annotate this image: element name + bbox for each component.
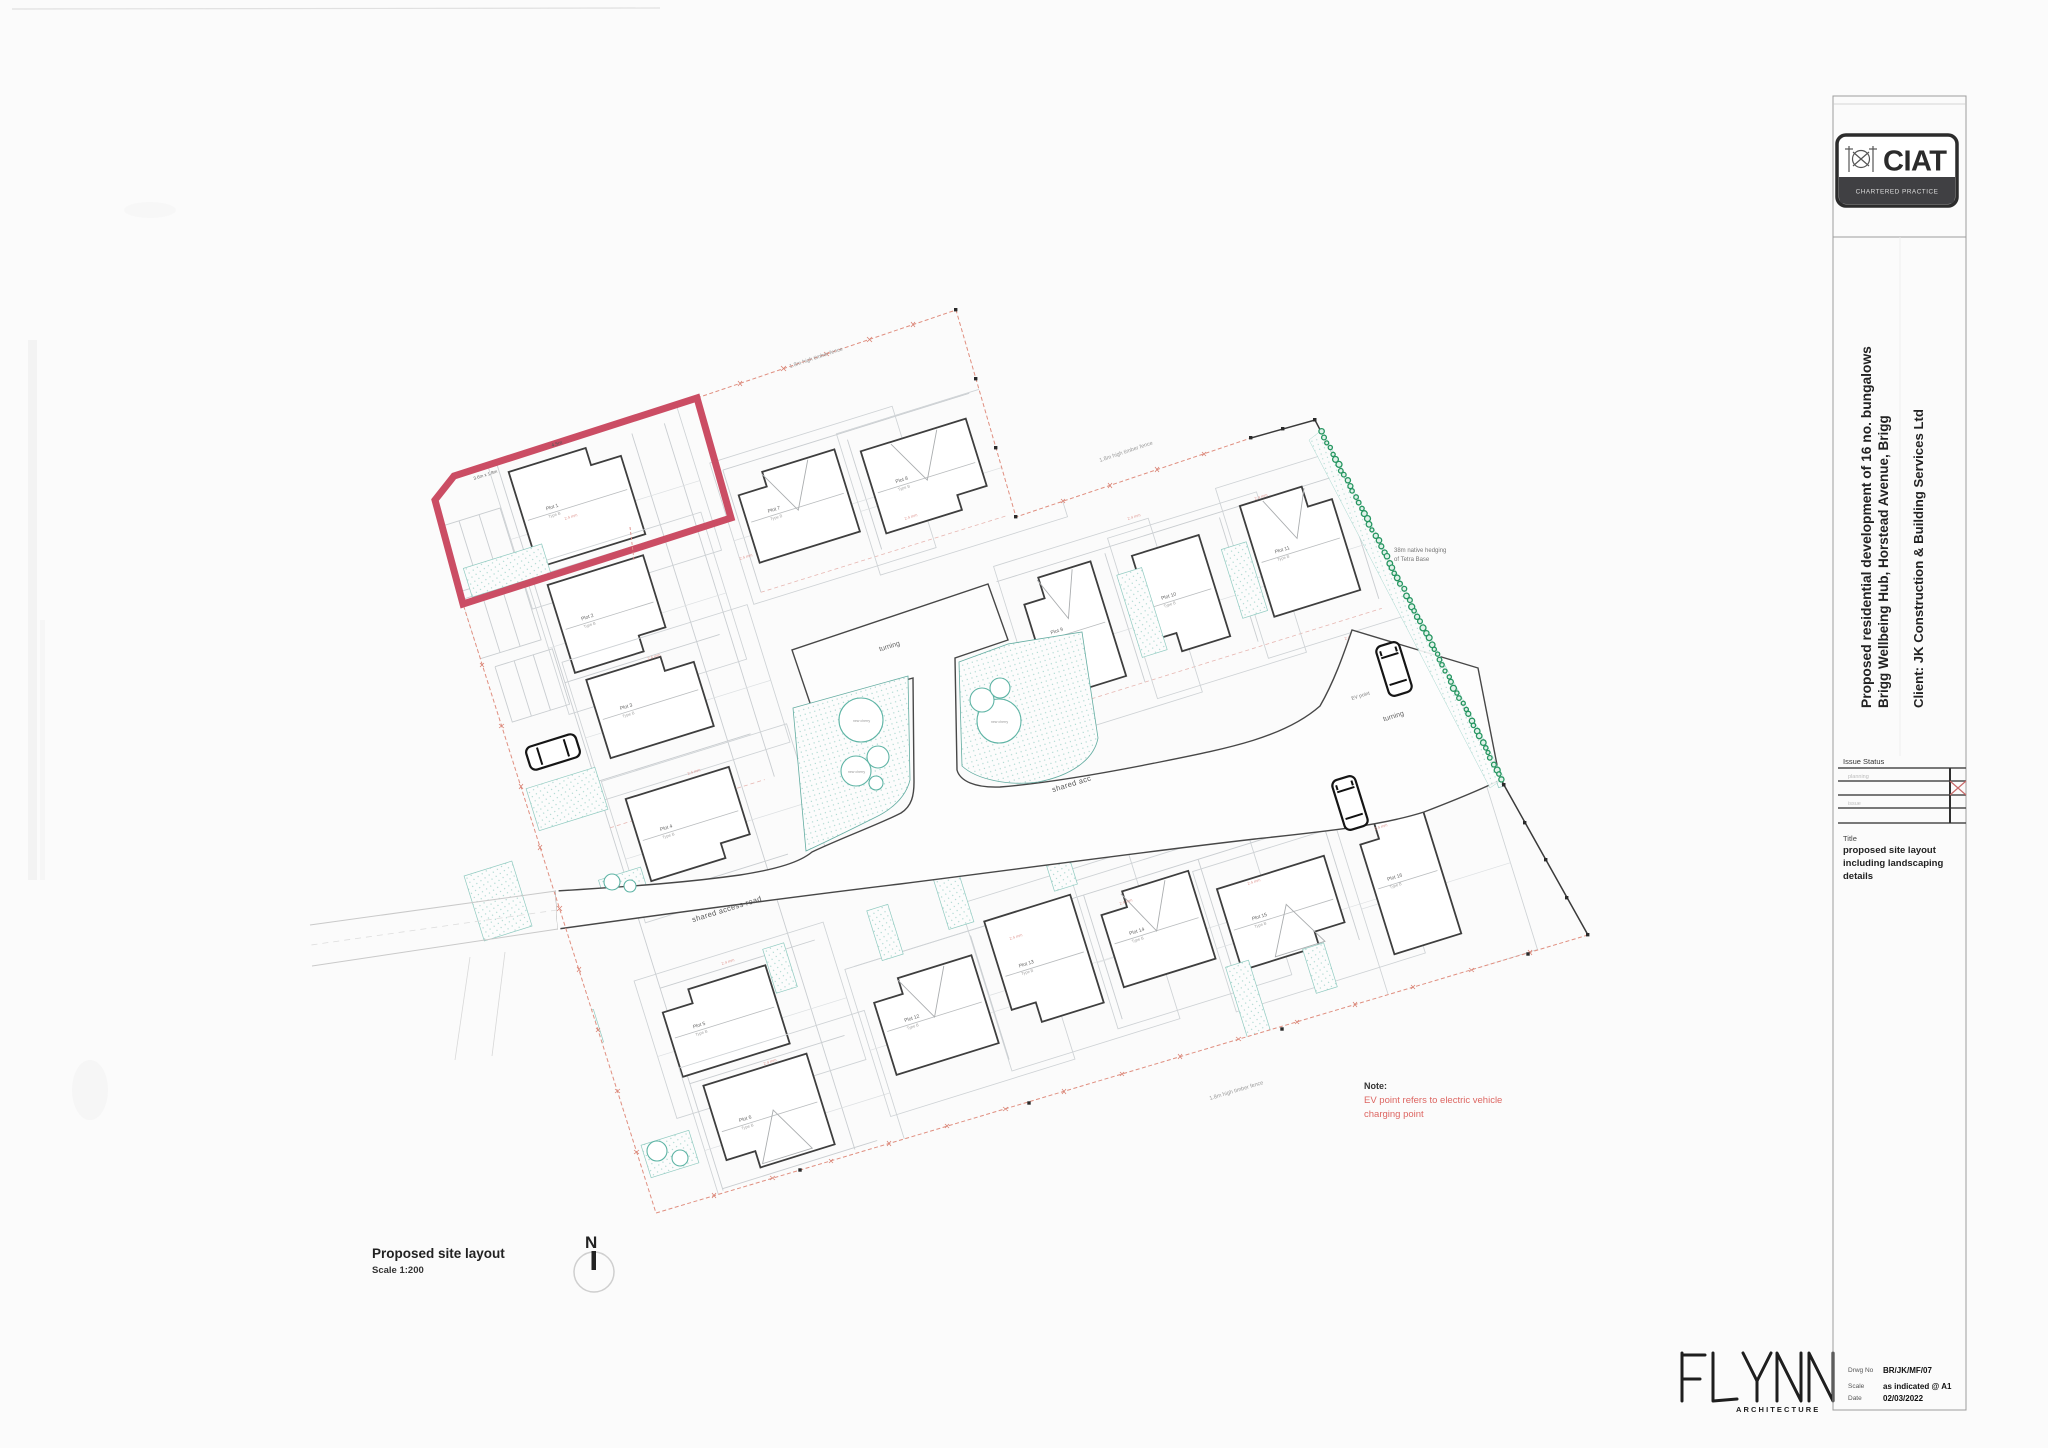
svg-text:Date: Date (1848, 1395, 1862, 1402)
svg-text:proposed site layout: proposed site layout (1843, 845, 1937, 856)
svg-text:ARCHITECTURE: ARCHITECTURE (1736, 1405, 1820, 1414)
svg-text:issue: issue (1848, 801, 1861, 807)
svg-text:38m native hedging: 38m native hedging (1394, 548, 1446, 554)
svg-text:new cherry: new cherry (853, 719, 870, 723)
svg-text:including landscaping: including landscaping (1843, 858, 1943, 869)
svg-text:EV point refers to electric ve: EV point refers to electric vehicle (1364, 1095, 1502, 1106)
svg-text:Title: Title (1843, 834, 1857, 843)
svg-text:CIAT: CIAT (1883, 146, 1947, 178)
svg-text:of Tetra Base: of Tetra Base (1394, 557, 1430, 563)
svg-text:new cherry: new cherry (848, 770, 865, 774)
svg-text:Issue Status: Issue Status (1843, 757, 1885, 766)
svg-text:as indicated @ A1: as indicated @ A1 (1883, 1382, 1952, 1391)
svg-text:Scale 1:200: Scale 1:200 (372, 1265, 424, 1276)
svg-text:BR/JK/MF/07: BR/JK/MF/07 (1883, 1366, 1932, 1375)
svg-text:Client: JK Construction & Bui: Client: JK Construction & Building Servi… (1911, 409, 1926, 708)
svg-text:Scale: Scale (1848, 1383, 1865, 1390)
svg-text:Drwg No: Drwg No (1848, 1367, 1874, 1374)
svg-text:Note:: Note: (1364, 1081, 1387, 1091)
svg-text:new cherry: new cherry (991, 720, 1008, 724)
svg-text:Proposed residential developme: Proposed residential development of 16 n… (1859, 346, 1874, 708)
svg-text:02/03/2022: 02/03/2022 (1883, 1394, 1924, 1403)
svg-text:details: details (1843, 871, 1873, 882)
svg-text:N: N (585, 1233, 597, 1252)
svg-text:charging point: charging point (1364, 1109, 1424, 1120)
svg-text:CHARTERED PRACTICE: CHARTERED PRACTICE (1856, 189, 1939, 196)
svg-text:Brigg Wellbeing Hub, Horstead: Brigg Wellbeing Hub, Horstead Avenue, Br… (1876, 415, 1891, 708)
svg-text:Proposed site layout: Proposed site layout (372, 1246, 505, 1261)
svg-text:planning: planning (1848, 774, 1869, 780)
